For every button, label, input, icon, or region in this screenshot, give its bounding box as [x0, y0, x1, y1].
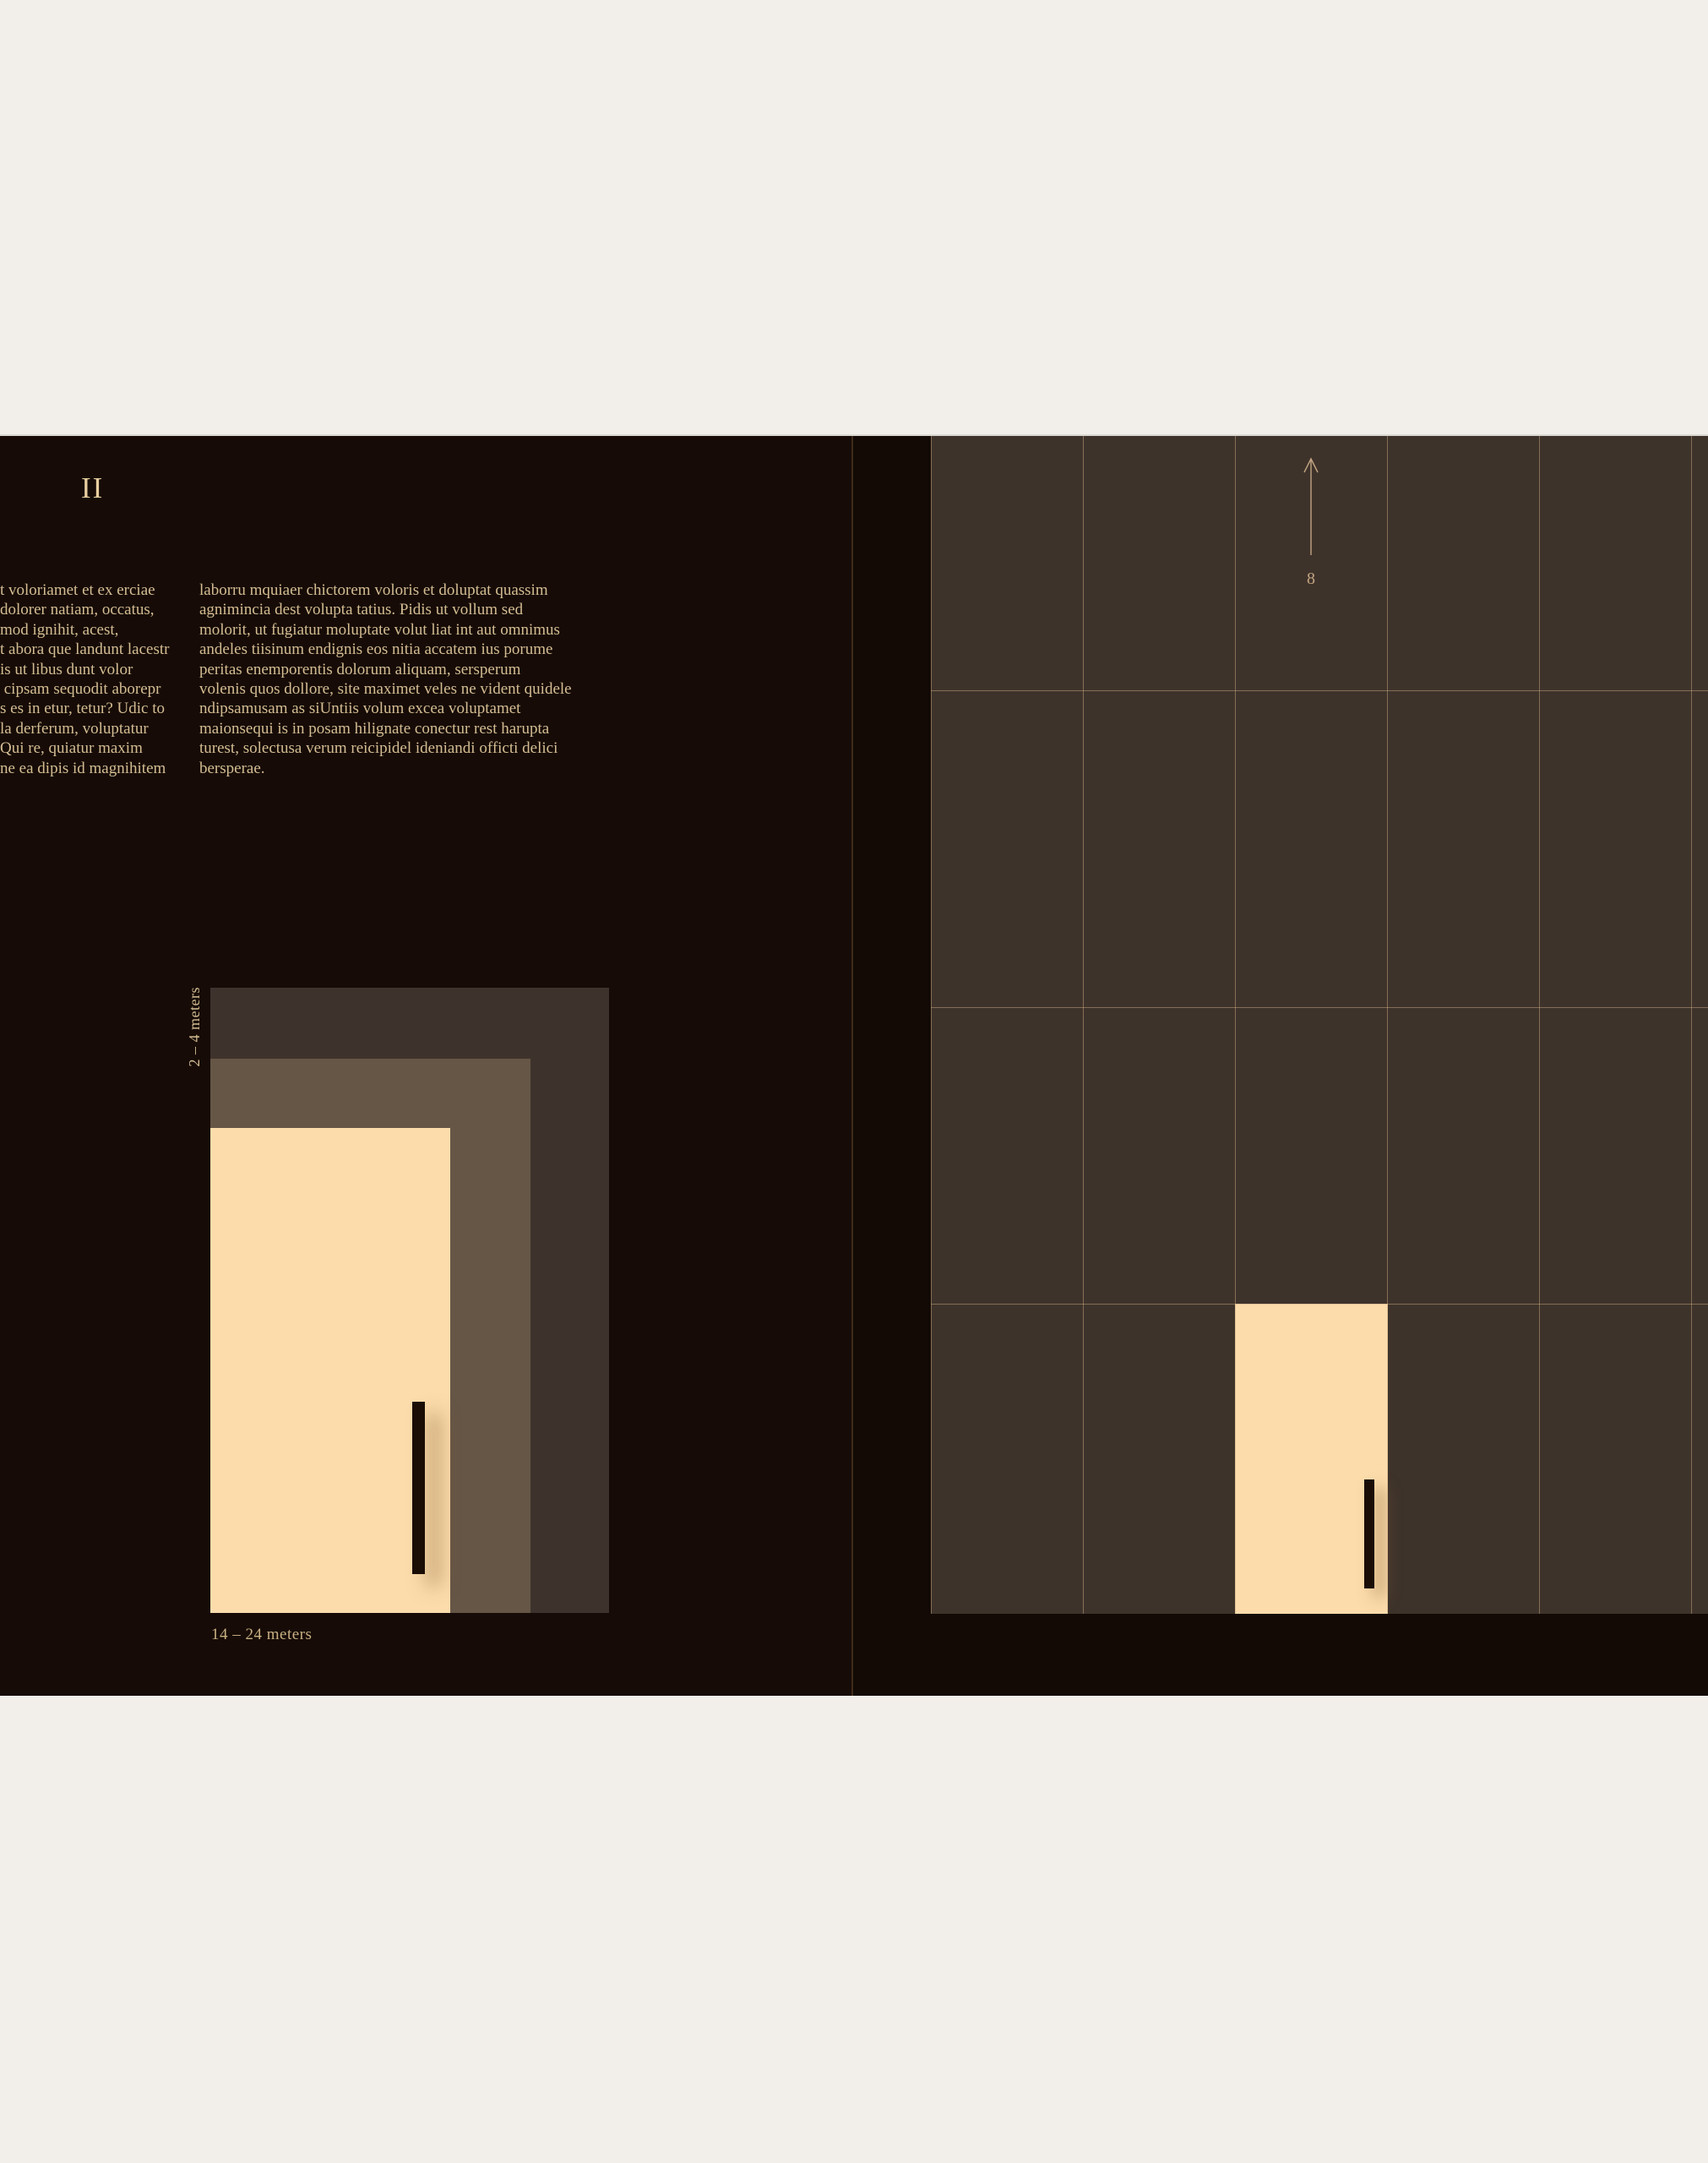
- grid-line-vertical: [1387, 436, 1388, 1614]
- grid-line-vertical: [1235, 436, 1236, 1614]
- grid-line-horizontal: [931, 1007, 1708, 1008]
- measurement-grid: 8: [931, 436, 1708, 1614]
- grid-door-bar: [1364, 1479, 1374, 1588]
- left-page: II t voloriamet et ex erciae dolorer nat…: [0, 436, 853, 1696]
- grid-line-horizontal: [931, 690, 1708, 691]
- grid-line-vertical: [1691, 436, 1692, 1614]
- arrow-value-label: 8: [1299, 569, 1323, 589]
- body-text-column-2: laborru mquiaer chictorem voloris et dol…: [199, 580, 571, 778]
- body-text-column-1: t voloriamet et ex erciae dolorer natiam…: [0, 580, 169, 778]
- grid-line-horizontal: [931, 1304, 1708, 1305]
- page-canvas: II t voloriamet et ex erciae dolorer nat…: [0, 0, 1708, 2163]
- diagram-horizontal-label: 14 – 24 meters: [211, 1626, 312, 1644]
- page-gutter-line: [851, 436, 853, 1696]
- diagram-door-bar: [412, 1402, 425, 1574]
- book-spread: II t voloriamet et ex erciae dolorer nat…: [0, 436, 1708, 1696]
- grid-line-vertical: [1539, 436, 1540, 1614]
- up-arrow-icon: [1299, 456, 1323, 558]
- grid-line-vertical: [931, 436, 932, 1614]
- grid-line-vertical: [1083, 436, 1084, 1614]
- diagram-vertical-label: 2 – 4 meters: [186, 987, 203, 1066]
- chapter-numeral: II: [81, 473, 104, 503]
